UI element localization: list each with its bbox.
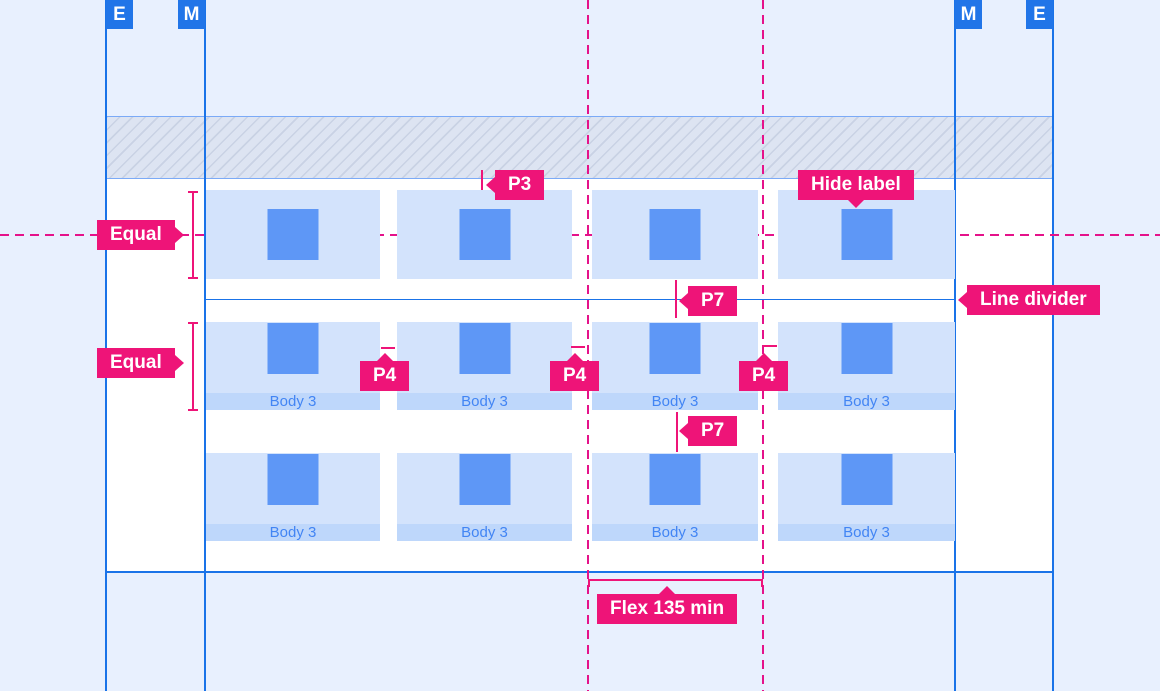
card-row2-col4: Body 3: [778, 322, 955, 410]
equal-top-bracket: [192, 192, 194, 278]
card-footer: Body 3: [592, 393, 758, 410]
image-placeholder-tile: [841, 454, 892, 505]
card-footer: Body 3: [397, 524, 572, 541]
hide-label-label: Hide label: [798, 170, 914, 200]
flex-measure-bracket: [588, 579, 763, 581]
p7-bottom-measure-tick: [676, 412, 678, 452]
card-footer-text: Body 3: [652, 393, 699, 410]
keyline-marker-e-right: E: [1026, 0, 1053, 29]
card-row3-col1: Body 3: [206, 453, 380, 541]
equal-top-label: Equal: [97, 220, 175, 250]
card-row1-col2: [397, 190, 572, 279]
image-placeholder-tile: [841, 323, 892, 374]
p4-label-1: P4: [360, 361, 409, 391]
card-footer-text: Body 3: [461, 393, 508, 410]
dashed-guide-vertical-left: [587, 0, 589, 691]
card-row3-col3: Body 3: [592, 453, 758, 541]
line-divider: [205, 299, 955, 300]
p4-measure-tick-1: [381, 347, 395, 349]
equal-bottom-bracket-cap: [188, 322, 198, 324]
card-row3-col4: Body 3: [778, 453, 955, 541]
equal-bottom-label: Equal: [97, 348, 175, 378]
p7-top-label: P7: [688, 286, 737, 316]
card-footer-text: Body 3: [843, 524, 890, 541]
card-footer: Body 3: [206, 393, 380, 410]
keyline-edge-left: [105, 0, 107, 691]
image-placeholder-tile: [268, 323, 319, 374]
p7-bottom-label: P7: [688, 416, 737, 446]
image-placeholder-tile: [268, 454, 319, 505]
keyline-marker-m-left: M: [178, 0, 205, 29]
equal-bottom-bracket: [192, 323, 194, 410]
p4-measure-tick-2: [571, 346, 585, 348]
image-placeholder-tile: [459, 209, 510, 260]
card-footer-text: Body 3: [270, 393, 317, 410]
card-row1-col3: [592, 190, 758, 279]
p4-measure-tick-3: [763, 345, 777, 347]
card-footer: Body 3: [592, 524, 758, 541]
image-placeholder-tile: [459, 454, 510, 505]
card-footer: Body 3: [778, 393, 955, 410]
keyline-marker-e-left: E: [106, 0, 133, 29]
flex-measure-bracket-cap: [588, 579, 590, 587]
image-placeholder-tile: [459, 323, 510, 374]
equal-top-bracket-cap: [188, 191, 198, 193]
equal-bottom-bracket-cap: [188, 409, 198, 411]
layout-spec-diagram: Body 3 Body 3 Body 3 Body 3 Body 3 Body …: [0, 0, 1160, 691]
card-row1-col4: [778, 190, 955, 279]
card-footer: Body 3: [206, 524, 380, 541]
p7-top-measure-tick: [675, 280, 677, 318]
card-row2-col3: Body 3: [592, 322, 758, 410]
card-footer: Body 3: [778, 524, 955, 541]
card-footer-text: Body 3: [843, 393, 890, 410]
p3-label: P3: [495, 170, 544, 200]
image-placeholder-tile: [268, 209, 319, 260]
flex-min-label: Flex 135 min: [597, 594, 737, 624]
image-placeholder-tile: [650, 454, 701, 505]
card-row3-col2: Body 3: [397, 453, 572, 541]
p4-label-3: P4: [739, 361, 788, 391]
card-footer-text: Body 3: [652, 524, 699, 541]
card-footer-text: Body 3: [461, 524, 508, 541]
keyline-marker-m-right: M: [955, 0, 982, 29]
card-row2-col1: Body 3: [206, 322, 380, 410]
keyline-edge-right: [1052, 0, 1054, 691]
p3-measure-tick: [481, 170, 483, 190]
equal-top-bracket-cap: [188, 277, 198, 279]
line-divider-label: Line divider: [967, 285, 1100, 315]
card-footer-text: Body 3: [270, 524, 317, 541]
content-bottom-border: [106, 571, 1053, 573]
card-footer: Body 3: [397, 393, 572, 410]
image-placeholder-tile: [650, 323, 701, 374]
image-placeholder-tile: [650, 209, 701, 260]
image-placeholder-tile: [841, 209, 892, 260]
flex-measure-bracket-cap: [761, 579, 763, 587]
card-row1-col1: [206, 190, 380, 279]
card-row2-col2: Body 3: [397, 322, 572, 410]
p4-label-2: P4: [550, 361, 599, 391]
